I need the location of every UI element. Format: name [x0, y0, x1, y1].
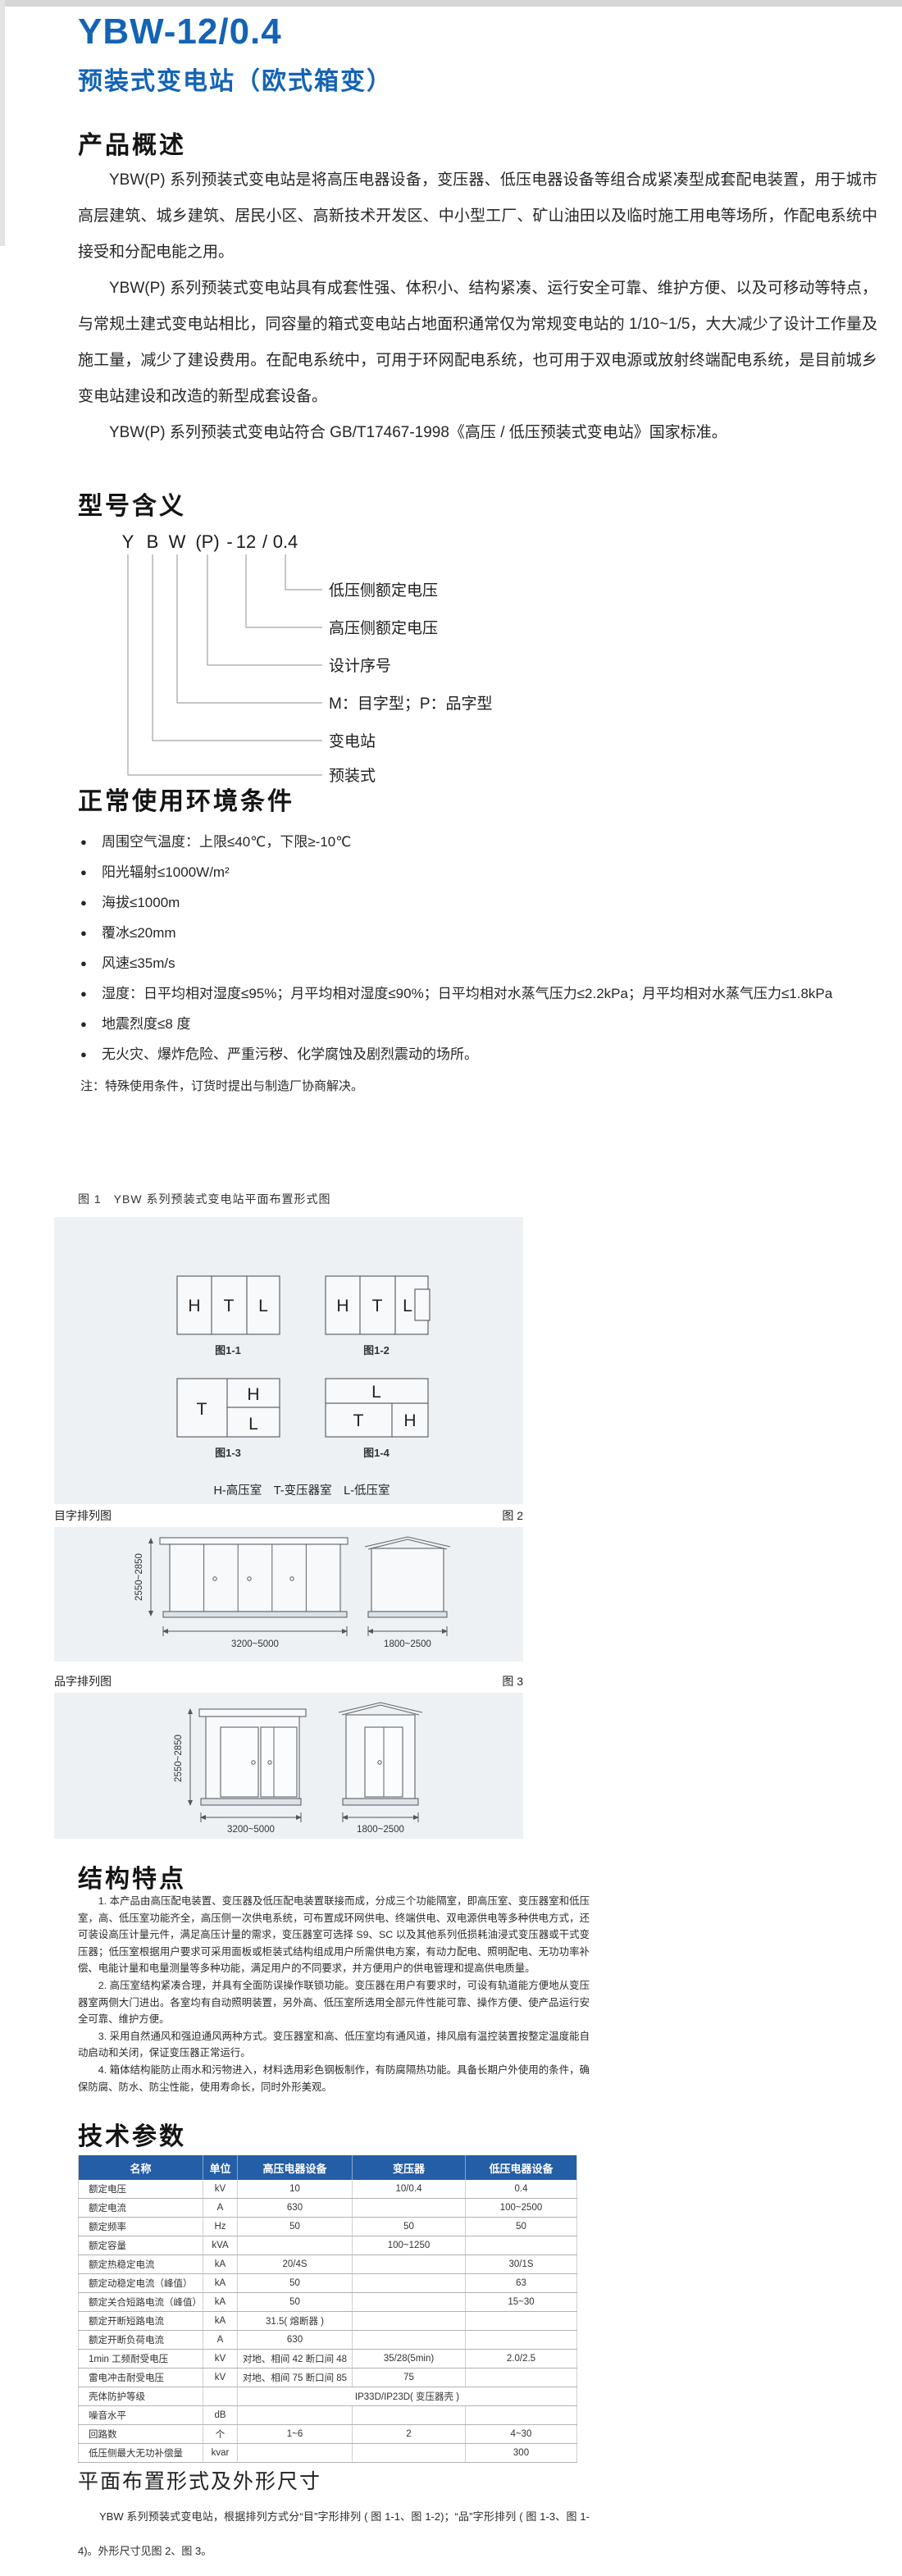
bullet-icon: ● [80, 827, 102, 857]
condition-text: 湿度：日平均相对湿度≤95%；月平均相对湿度≤90%；日平均相对水蒸气压力≤2.… [102, 978, 832, 1009]
table-cell [353, 2312, 466, 2331]
structure-paragraph: 2. 高压室结构紧凑合理，并具有全面防误操作联锁功能。变压器在用户有要求时，可设… [78, 1977, 590, 2028]
condition-text: 覆冰≤20mm [102, 918, 176, 948]
scan-edge-left [0, 0, 5, 246]
figure2-drawing: 2550~2850 3200~5000 1800~2500 [54, 1527, 523, 1662]
structure-paragraph: 3. 采用自然通风和强迫通风两种方式。变压器室和高、低压室均有通风道，排风扇有温… [78, 2028, 590, 2062]
table-cell: kVA [203, 2236, 238, 2255]
table-cell [466, 2236, 577, 2255]
table-row: 低压侧最大无功补偿量kvar300 [79, 2444, 577, 2463]
svg-text:预装式: 预装式 [329, 767, 376, 785]
table-cell [466, 2406, 577, 2425]
col-header: 高压电器设备 [238, 2155, 353, 2180]
table-cell: 额定容量 [79, 2236, 203, 2255]
table-cell: 100~2500 [466, 2199, 577, 2218]
overview-paragraphs: YBW(P) 系列预装式变电站是将高压电器设备，变压器、低压电器设备等组合成紧凑… [78, 162, 877, 451]
table-cell: 0.4 [466, 2180, 577, 2199]
svg-text:0.4: 0.4 [273, 531, 298, 552]
page-subtitle: 预装式变电站（欧式箱变） [78, 61, 393, 97]
condition-item: ●海拔≤1000m [80, 887, 888, 918]
table-cell: 额定频率 [79, 2218, 203, 2236]
bullet-icon: ● [80, 918, 102, 948]
tech-table-body: 额定电压kV1010/0.40.4额定电流A630100~2500额定频率Hz5… [79, 2180, 577, 2463]
bullet-icon: ● [80, 887, 102, 918]
table-cell: kA [203, 2293, 238, 2312]
overview-paragraph: YBW(P) 系列预装式变电站具有成套性强、体积小、结构紧凑、运行安全可靠、维护… [78, 271, 877, 415]
figure1-drawing: H T L H T L T H L L T H 图1-1 图1-2 图1-3 图… [54, 1217, 523, 1504]
bullet-icon: ● [80, 857, 102, 887]
svg-text:3200~5000: 3200~5000 [227, 1825, 275, 1835]
table-row: 额定开断负荷电流A630 [79, 2331, 577, 2350]
table-cell: kV [203, 2369, 238, 2387]
table-row: 额定频率Hz505050 [79, 2218, 577, 2236]
condition-item: ●周围空气温度：上限≤40℃，下限≥-10℃ [80, 827, 888, 857]
svg-text:H: H [336, 1297, 348, 1315]
model-code: Y B W (P) - 12 / 0.4 [122, 531, 298, 552]
condition-text: 地震烈度≤8 度 [102, 1009, 191, 1039]
bullet-icon: ● [80, 1039, 102, 1069]
structure-paragraphs: 1. 本产品由高压配电装置、变压器及低压配电装置联接而成，分成三个功能隔室，即高… [78, 1893, 590, 2095]
figure2-label-row: 目字排列图 图 2 [54, 1507, 523, 1524]
table-cell: 额定关合短路电流（峰值） [79, 2293, 203, 2312]
table-cell: 50 [238, 2218, 353, 2236]
conditions-list: ●周围空气温度：上限≤40℃，下限≥-10℃●阳光辐射≤1000W/m²●海拔≤… [80, 827, 888, 1069]
table-row: 雷电冲击耐受电压kV对地、相间 75 断口间 8575 [79, 2369, 577, 2387]
svg-text:T: T [197, 1400, 207, 1419]
section-heading-structure: 结构特点 [78, 1858, 186, 1894]
svg-text:H: H [403, 1411, 416, 1430]
table-cell [353, 2274, 466, 2293]
table-row: 额定热稳定电流kA20/4S30/1S [79, 2255, 577, 2274]
overview-paragraph: YBW(P) 系列预装式变电站是将高压电器设备，变压器、低压电器设备等组合成紧凑… [78, 162, 877, 271]
table-cell: 噪音水平 [79, 2406, 203, 2425]
page-title: YBW-12/0.4 [78, 11, 282, 52]
col-header: 单位 [203, 2155, 238, 2180]
table-cell [353, 2293, 466, 2312]
table-cell: 300 [466, 2444, 577, 2463]
section-heading-overview: 产品概述 [78, 125, 186, 161]
svg-text:设计序号: 设计序号 [329, 657, 391, 675]
svg-text:T: T [353, 1411, 364, 1430]
table-cell: A [203, 2199, 238, 2218]
svg-text:1800~2500: 1800~2500 [357, 1825, 404, 1835]
table-cell: 31.5( 熔断器 ) [238, 2312, 353, 2331]
figure2-panel: 2550~2850 3200~5000 1800~2500 [54, 1527, 523, 1662]
svg-text:L: L [371, 1383, 381, 1402]
figure3-panel: 2550~2850 3200~5000 1800~2500 [54, 1693, 523, 1839]
condition-text: 风速≤35m/s [102, 948, 175, 978]
table-row: 回路数个1~624~30 [79, 2425, 577, 2444]
table-row: 1min 工频耐受电压kV对地、相间 42 断口间 4835/28(5min)2… [79, 2350, 577, 2369]
table-cell [353, 2199, 466, 2218]
table-cell: kV [203, 2350, 238, 2369]
condition-item: ●湿度：日平均相对湿度≤95%；月平均相对湿度≤90%；日平均相对水蒸气压力≤2… [80, 978, 888, 1009]
svg-text:图1-2: 图1-2 [363, 1344, 389, 1356]
table-cell: 2.0/2.5 [466, 2350, 577, 2369]
table-cell: kA [203, 2312, 238, 2331]
table-row: 额定动稳定电流（峰值）kA5063 [79, 2274, 577, 2293]
svg-text:2550~2850: 2550~2850 [134, 1553, 144, 1601]
table-row: 额定开断短路电流kA31.5( 熔断器 ) [79, 2312, 577, 2331]
table-cell [353, 2444, 466, 2463]
conditions-note: 注：特殊使用条件，订货时提出与制造厂协商解决。 [80, 1072, 888, 1101]
table-cell: 1min 工频耐受电压 [79, 2350, 203, 2369]
svg-text:L: L [403, 1297, 412, 1315]
table-cell: kV [203, 2180, 238, 2199]
table-cell: 30/1S [466, 2255, 577, 2274]
table-cell: 75 [353, 2369, 466, 2387]
table-cell: 额定电压 [79, 2180, 203, 2199]
figure1-caption: 图 1 YBW 系列预装式变电站平面布置形式图 [78, 1191, 330, 1207]
table-cell [353, 2255, 466, 2274]
table-cell [238, 2444, 353, 2463]
table-cell [238, 2236, 353, 2255]
table-header-row: 名称 单位 高压电器设备 变压器 低压电器设备 [79, 2155, 577, 2180]
condition-item: ●覆冰≤20mm [80, 918, 888, 948]
table-cell: IP33D/IP23D( 变压器壳 ) [238, 2387, 577, 2406]
table-cell: 63 [466, 2274, 577, 2293]
svg-text:-: - [226, 531, 232, 552]
table-cell: 额定开断短路电流 [79, 2312, 203, 2331]
table-cell: kA [203, 2255, 238, 2274]
table-cell: 雷电冲击耐受电压 [79, 2369, 203, 2387]
figure3-label: 品字排列图 [54, 1673, 112, 1689]
table-cell [353, 2331, 466, 2350]
svg-text:(P): (P) [195, 531, 219, 552]
overview-paragraph: YBW(P) 系列预装式变电站符合 GB/T17467-1998《高压 / 低压… [78, 415, 877, 451]
table-cell: 50 [353, 2218, 466, 2236]
col-header: 变压器 [353, 2155, 466, 2180]
figure1-panel: H T L H T L T H L L T H 图1-1 图1-2 图1-3 图… [54, 1217, 523, 1504]
svg-text:Y: Y [122, 531, 134, 552]
table-row: 壳体防护等级IP33D/IP23D( 变压器壳 ) [79, 2387, 577, 2406]
bullet-icon: ● [80, 948, 102, 978]
table-cell: 额定动稳定电流（峰值） [79, 2274, 203, 2293]
page: YBW-12/0.4 预装式变电站（欧式箱变） 产品概述 YBW(P) 系列预装… [0, 0, 902, 2576]
table-cell: 100~1250 [353, 2236, 466, 2255]
condition-item: ●地震烈度≤8 度 [80, 1009, 888, 1039]
conditions-block: ●周围空气温度：上限≤40℃，下限≥-10℃●阳光辐射≤1000W/m²●海拔≤… [80, 827, 888, 1101]
col-header: 名称 [79, 2155, 203, 2180]
table-cell: 1~6 [238, 2425, 353, 2444]
structure-paragraph: 4. 箱体结构能防止雨水和污物进入，材料选用彩色钢板制作，有防腐隔热功能。具备长… [78, 2062, 590, 2095]
table-row: 额定电压kV1010/0.40.4 [79, 2180, 577, 2199]
table-cell: 35/28(5min) [353, 2350, 466, 2369]
bullet-icon: ● [80, 1009, 102, 1039]
table-cell [353, 2406, 466, 2425]
table-cell: 回路数 [79, 2425, 203, 2444]
svg-text:B: B [147, 531, 159, 552]
svg-text:H: H [188, 1297, 200, 1315]
condition-item: ●无火灾、爆炸危险、严重污秽、化学腐蚀及剧烈震动的场所。 [80, 1039, 888, 1069]
table-cell: 个 [203, 2425, 238, 2444]
section-heading-tech: 技术参数 [78, 2116, 186, 2152]
figure3-drawing: 2550~2850 3200~5000 1800~2500 [54, 1693, 523, 1839]
table-cell: 2 [353, 2425, 466, 2444]
condition-text: 海拔≤1000m [102, 887, 180, 918]
svg-text:2550~2850: 2550~2850 [174, 1735, 184, 1782]
model-designation-diagram: Y B W (P) - 12 / 0.4 低压侧额定电压 高压侧额定电压 设计序… [78, 527, 816, 791]
layout-paragraph-block: YBW 系列预装式变电站，根据排列方式分“目”字形排列 ( 图 1-1、图 1-… [78, 2500, 590, 2569]
table-cell: 额定开断负荷电流 [79, 2331, 203, 2350]
table-cell: 20/4S [238, 2255, 353, 2274]
svg-text:3200~5000: 3200~5000 [231, 1639, 279, 1649]
layout-paragraph: YBW 系列预装式变电站，根据排列方式分“目”字形排列 ( 图 1-1、图 1-… [78, 2500, 590, 2569]
table-cell [466, 2331, 577, 2350]
table-cell: 10 [238, 2180, 353, 2199]
section-heading-model: 型号含义 [78, 486, 186, 522]
table-cell: 50 [238, 2274, 353, 2293]
table-cell: 630 [238, 2331, 353, 2350]
condition-item: ●阳光辐射≤1000W/m² [80, 857, 888, 887]
table-cell: 15~30 [466, 2293, 577, 2312]
table-cell: 对地、相间 42 断口间 48 [238, 2350, 353, 2369]
table-row: 额定关合短路电流（峰值）kA5015~30 [79, 2293, 577, 2312]
figure1-legend: H-高压室 T-变压器室 L-低压室 [213, 1484, 389, 1498]
model-labels: 低压侧额定电压 高压侧额定电压 设计序号 M：目字型；P：品字型 变电站 预装式 [329, 581, 493, 785]
figure2-number: 图 2 [502, 1507, 523, 1524]
table-cell [203, 2387, 238, 2406]
svg-text:H: H [247, 1385, 259, 1404]
table-cell: 低压侧最大无功补偿量 [79, 2444, 203, 2463]
svg-text:W: W [169, 531, 186, 552]
svg-text:变电站: 变电站 [329, 732, 376, 750]
svg-text:L: L [248, 1415, 258, 1434]
svg-text:低压侧额定电压: 低压侧额定电压 [329, 581, 438, 600]
svg-text:M：目字型；P：品字型: M：目字型；P：品字型 [329, 695, 493, 713]
table-cell [238, 2406, 353, 2425]
col-header: 低压电器设备 [466, 2155, 577, 2180]
svg-text:L: L [258, 1297, 268, 1315]
figure3-label-row: 品字排列图 图 3 [54, 1673, 523, 1689]
svg-text:图1-3: 图1-3 [215, 1447, 241, 1459]
svg-text:图1-1: 图1-1 [215, 1344, 241, 1356]
figure3-number: 图 3 [502, 1673, 523, 1689]
table-cell: Hz [203, 2218, 238, 2236]
svg-text:12: 12 [236, 531, 256, 552]
table-cell: 4~30 [466, 2425, 577, 2444]
figure2-label: 目字排列图 [54, 1507, 112, 1524]
condition-item: ●风速≤35m/s [80, 948, 888, 978]
table-cell: kvar [203, 2444, 238, 2463]
svg-text:/: / [262, 531, 268, 552]
table-cell [466, 2312, 577, 2331]
table-row: 额定容量kVA100~1250 [79, 2236, 577, 2255]
table-cell: 10/0.4 [353, 2180, 466, 2199]
condition-text: 阳光辐射≤1000W/m² [102, 857, 230, 887]
table-cell: 50 [238, 2293, 353, 2312]
table-row: 额定电流A630100~2500 [79, 2199, 577, 2218]
bullet-icon: ● [80, 978, 102, 1009]
section-heading-layout: 平面布置形式及外形尺寸 [78, 2465, 321, 2495]
table-cell: 630 [238, 2199, 353, 2218]
scan-edge-top [0, 0, 902, 7]
condition-text: 无火灾、爆炸危险、严重污秽、化学腐蚀及剧烈震动的场所。 [102, 1039, 478, 1069]
table-cell: 额定电流 [79, 2199, 203, 2218]
table-row: 噪音水平dB [79, 2406, 577, 2425]
table-cell: kA [203, 2274, 238, 2293]
table-cell: A [203, 2331, 238, 2350]
table-cell: 壳体防护等级 [79, 2387, 203, 2406]
svg-text:T: T [372, 1297, 383, 1315]
table-cell: 对地、相间 75 断口间 85 [238, 2369, 353, 2387]
table-cell [466, 2369, 577, 2387]
table-cell: 额定热稳定电流 [79, 2255, 203, 2274]
tech-parameters-table: 名称 单位 高压电器设备 变压器 低压电器设备 额定电压kV1010/0.40.… [78, 2155, 577, 2463]
table-cell: dB [203, 2406, 238, 2425]
condition-text: 周围空气温度：上限≤40℃，下限≥-10℃ [102, 827, 351, 857]
section-heading-conditions: 正常使用环境条件 [78, 781, 294, 817]
structure-paragraph: 1. 本产品由高压配电装置、变压器及低压配电装置联接而成，分成三个功能隔室，即高… [78, 1893, 590, 1977]
table-cell: 50 [466, 2218, 577, 2236]
svg-text:1800~2500: 1800~2500 [384, 1639, 431, 1649]
svg-text:图1-4: 图1-4 [363, 1447, 390, 1459]
svg-text:T: T [224, 1297, 235, 1315]
svg-text:高压侧额定电压: 高压侧额定电压 [329, 619, 438, 637]
